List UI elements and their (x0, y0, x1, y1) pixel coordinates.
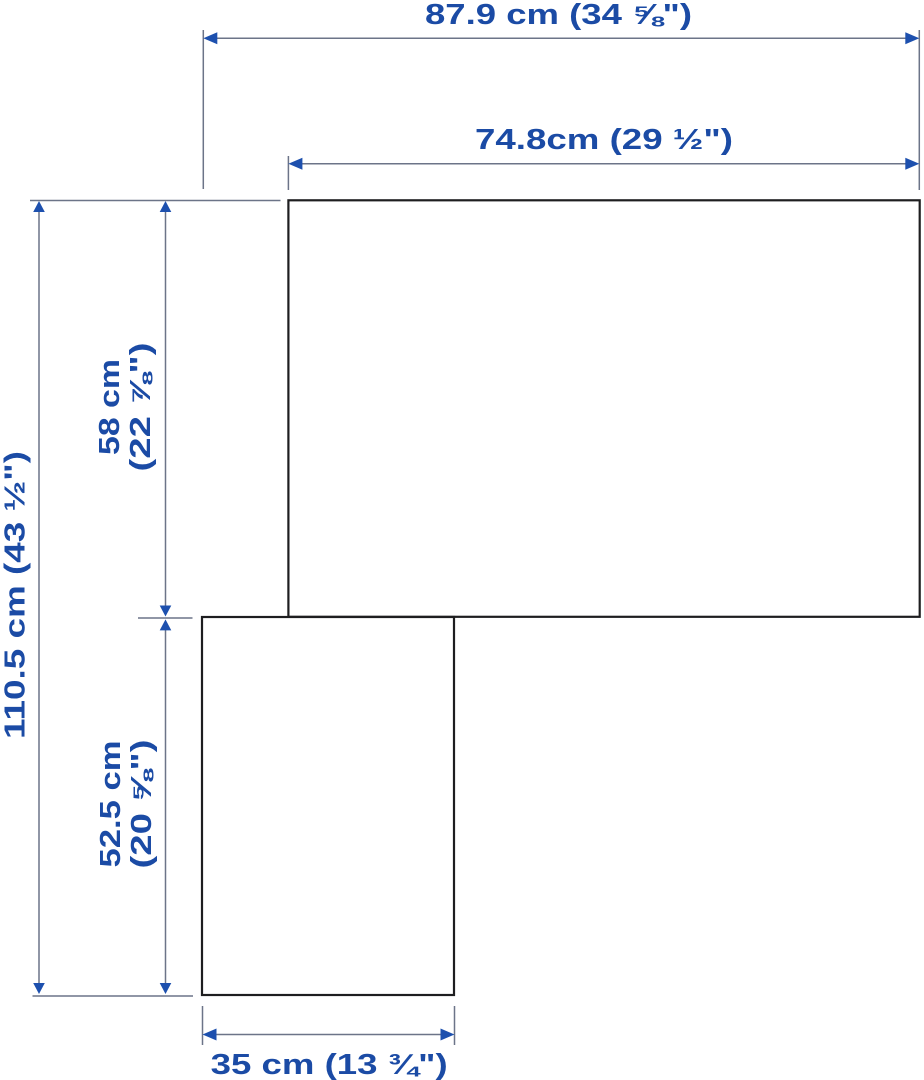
svg-text:74.8cm (29 ½"): 74.8cm (29 ½") (475, 124, 733, 156)
svg-text:(22 ⅞"): (22 ⅞") (125, 343, 157, 472)
svg-text:87.9 cm (34 ⅝"): 87.9 cm (34 ⅝") (425, 0, 692, 31)
svg-text:52.5 cm: 52.5 cm (95, 741, 127, 868)
svg-text:35 cm (13 ¾"): 35 cm (13 ¾") (211, 1049, 448, 1080)
svg-text:58 cm: 58 cm (94, 359, 126, 455)
svg-text:(20 ⅝"): (20 ⅝") (126, 740, 158, 869)
svg-text:110.5 cm (43 ½"): 110.5 cm (43 ½") (0, 451, 31, 739)
